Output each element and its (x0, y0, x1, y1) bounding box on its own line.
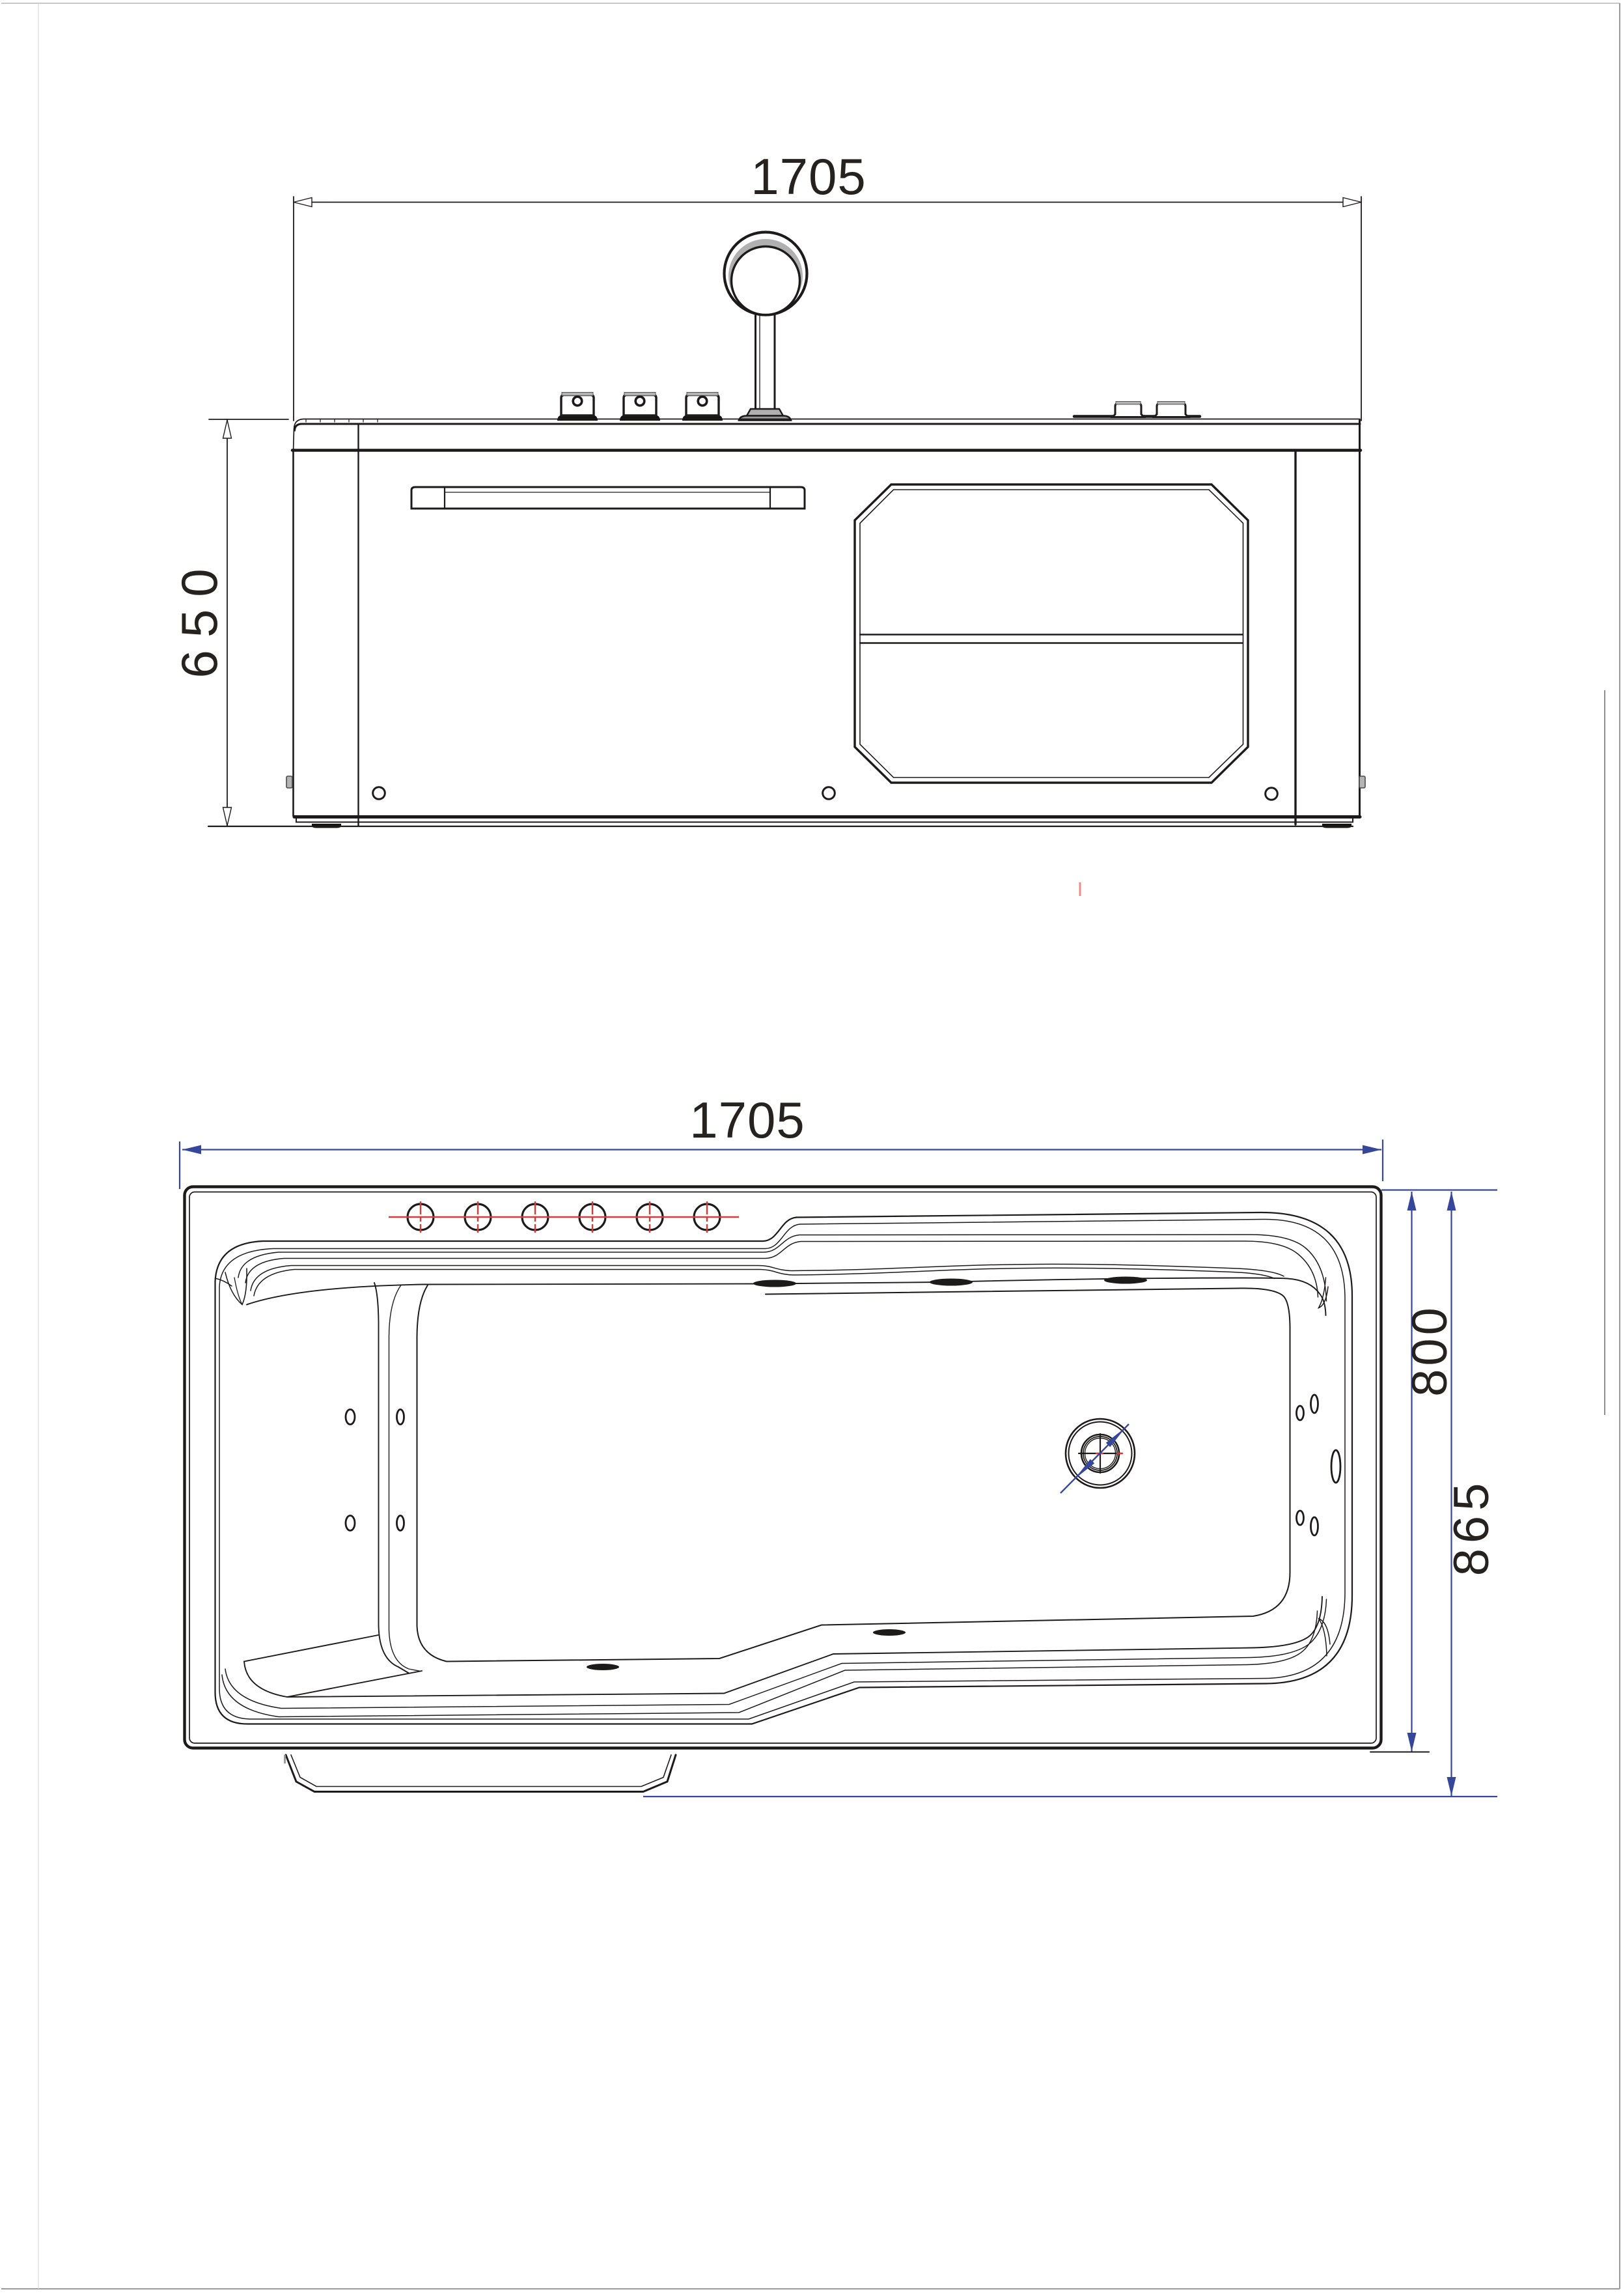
svg-text:1705: 1705 (751, 148, 866, 205)
svg-text:650: 650 (171, 556, 228, 678)
svg-text:800: 800 (1402, 1304, 1458, 1397)
svg-text:865: 865 (1444, 1478, 1499, 1576)
svg-text:1705: 1705 (689, 1091, 805, 1149)
